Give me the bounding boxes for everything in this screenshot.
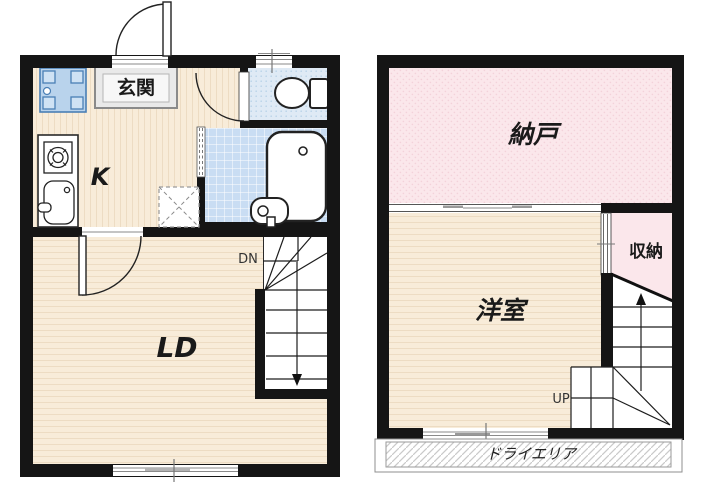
stairwell-area bbox=[263, 237, 327, 389]
floorplan-svg: 玄関 K LD DN bbox=[0, 0, 722, 501]
sliding-door-icon bbox=[389, 203, 672, 213]
washer-space-icon bbox=[159, 187, 199, 227]
stairs-up-label: UP bbox=[552, 392, 570, 407]
stairs-down-label: DN bbox=[238, 252, 258, 267]
floor-plan-2: 納戸 洋室 収納 UP ドライエリア bbox=[375, 55, 684, 472]
closet-label: 収納 bbox=[629, 241, 663, 262]
washbasin-icon bbox=[251, 198, 288, 227]
living-dining-label: LD bbox=[156, 331, 197, 364]
entrance-label: 玄関 bbox=[117, 76, 155, 99]
stairs-down bbox=[255, 237, 327, 399]
kitchen-label: K bbox=[91, 163, 112, 191]
toilet-icon bbox=[275, 78, 328, 108]
floorplan-canvas: 玄関 K LD DN bbox=[0, 0, 722, 501]
dry-area-label: ドライエリア bbox=[486, 445, 578, 463]
kitchen-counter bbox=[38, 135, 78, 227]
bathroom-folding-door-icon bbox=[197, 127, 205, 177]
dining-table-icon bbox=[40, 68, 86, 112]
entrance-door-icon bbox=[112, 2, 171, 68]
western-room-label: 洋室 bbox=[475, 296, 529, 325]
floor-plan-1: 玄関 K LD DN bbox=[20, 2, 340, 482]
storage-room-label: 納戸 bbox=[507, 120, 562, 149]
stove-icon bbox=[44, 142, 72, 173]
